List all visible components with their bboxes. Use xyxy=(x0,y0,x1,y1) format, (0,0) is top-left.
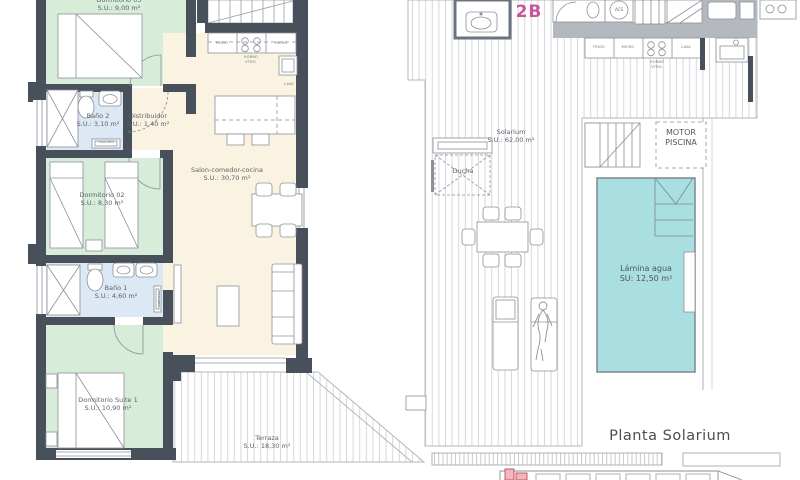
solarium-stairs xyxy=(585,123,640,167)
room-entry-nook xyxy=(163,55,196,88)
solarium-plan xyxy=(406,0,796,466)
solarium-basin-room xyxy=(455,0,510,38)
upper-floor-cut xyxy=(553,0,796,38)
room-distribuidor xyxy=(132,88,168,150)
unit-number: 2B xyxy=(516,2,543,22)
terraza-deck xyxy=(173,372,424,462)
pool-ladder-icon xyxy=(684,252,695,312)
motor-piscina-box xyxy=(656,122,706,168)
bed-dormitorio-03 xyxy=(58,14,142,78)
coffee-table xyxy=(217,286,239,326)
floor-plan-sheet: Dormitorio 03 S.U.: 9,00 m² Baño 2 S.U.:… xyxy=(0,0,800,480)
facade-strip xyxy=(432,453,780,466)
floor-plan-drawing xyxy=(0,0,800,480)
pool xyxy=(597,178,695,372)
deck-drain-box xyxy=(406,396,426,410)
tv-unit xyxy=(174,265,181,323)
apartment-plan xyxy=(28,0,424,462)
site-key-plan xyxy=(500,469,742,480)
apartment-stairs xyxy=(208,0,293,23)
plan-title: Planta Solarium xyxy=(609,428,731,444)
sofa xyxy=(272,264,302,344)
acs-heater-icon xyxy=(610,1,628,19)
bed-suite-1 xyxy=(46,373,124,448)
